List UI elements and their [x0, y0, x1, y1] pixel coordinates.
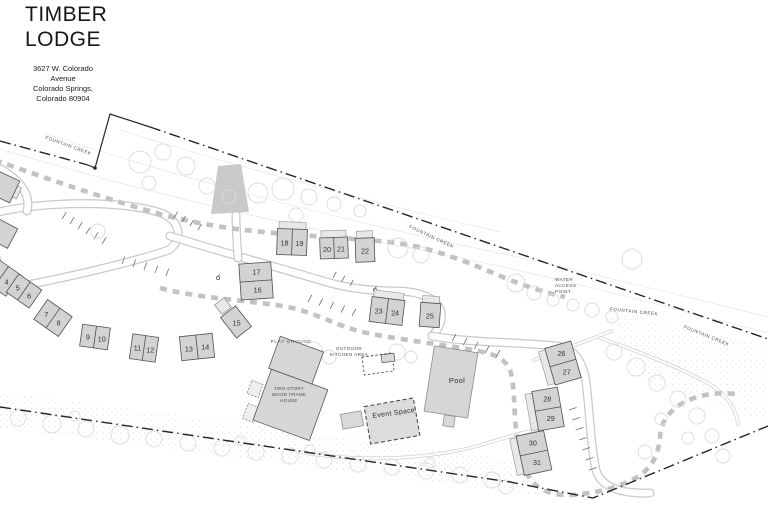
parking-tick: [102, 237, 106, 244]
cabin-number-24: 24: [391, 309, 399, 318]
parking-tick: [86, 227, 90, 234]
road-bridge-stub: [236, 215, 238, 258]
cabin-number-12: 12: [146, 345, 154, 354]
label-water-access-point-line-3: POINT: [555, 289, 571, 294]
tree: [199, 178, 215, 194]
tree: [405, 351, 417, 363]
parking-tick: [319, 298, 323, 305]
event-space-annex-part: [340, 411, 363, 429]
parking-tick: [569, 408, 577, 410]
cabin-number-7: 7: [44, 310, 48, 319]
cabin-number-20: 20: [323, 245, 331, 254]
tree: [248, 183, 268, 203]
outdoor-kitchen-grill-part: [381, 353, 395, 363]
cabin-number-23: 23: [375, 307, 383, 316]
creek-bridge: [211, 164, 249, 214]
tree: [129, 151, 151, 173]
event-space-part: [364, 398, 420, 444]
tree: [272, 178, 294, 200]
tree: [682, 432, 694, 444]
cabin-number-18: 18: [280, 238, 288, 247]
utility-marker-circle: [216, 276, 219, 279]
label-outdoor-kitchen-area-line-2: KITCHEN AREA: [330, 352, 369, 357]
outdoor-kitchen-grill: [381, 353, 395, 363]
tree: [91, 224, 105, 238]
cabin-number-19: 19: [295, 239, 303, 248]
label-water-access-point: WATERACCESSPOINT: [555, 277, 576, 294]
label-water-access-point-line-2: ACCESS: [555, 283, 576, 288]
cabin-number-22: 22: [361, 247, 369, 256]
parking-tick: [78, 222, 82, 229]
tree: [289, 208, 303, 222]
parking-tick: [496, 350, 500, 357]
cabin-number-14: 14: [201, 343, 209, 352]
parking-tick: [352, 309, 356, 316]
parking-tick: [341, 305, 345, 312]
cabin-number-4: 4: [5, 278, 9, 287]
cabin-number-13: 13: [185, 344, 193, 353]
parking-tick: [330, 302, 334, 309]
cabin-20-21-porch: [321, 230, 346, 238]
parking-tick: [576, 428, 584, 430]
cabin-number-10: 10: [98, 334, 106, 343]
label-two-story-house-line-2: WOOD FRAME: [272, 392, 307, 397]
parking-tick: [485, 346, 489, 353]
label-outdoor-kitchen-area: OUTDOORKITCHEN AREA: [330, 346, 369, 357]
parking-tick: [579, 438, 587, 440]
cabin-22-porch: [356, 231, 372, 239]
tree: [606, 344, 622, 360]
label-pool: Pool: [449, 376, 465, 385]
tree: [638, 445, 652, 459]
parking-tick: [62, 212, 66, 219]
cabin-number-5: 5: [16, 283, 20, 292]
cabin-number-11: 11: [134, 344, 141, 353]
tree: [388, 238, 408, 258]
tree: [155, 144, 171, 160]
event-space: [364, 398, 420, 444]
label-pool-line-1: Pool: [449, 376, 465, 385]
house-annex-1-part: [247, 380, 263, 397]
parking-tick: [166, 268, 169, 276]
label-play-ground-line-1: PLAY GROUND: [271, 339, 312, 344]
tree: [567, 299, 579, 311]
property-boundary-2: [88, 114, 150, 168]
tree: [716, 449, 730, 463]
label-play-ground: PLAY GROUND: [271, 339, 312, 344]
cabin-number-25: 25: [426, 312, 434, 321]
utility-marker: [216, 274, 219, 279]
tree: [705, 429, 719, 443]
property-boundary-3: [150, 127, 768, 339]
tree: [622, 249, 642, 269]
building-west-b-footprint: [0, 218, 18, 249]
label-water-access-point-line-1: WATER: [555, 277, 573, 282]
label-two-story-house-line-3: HOUSE: [280, 398, 298, 403]
tree: [689, 408, 705, 424]
house-annex-1: [247, 380, 263, 397]
cabin-number-29: 29: [547, 414, 555, 423]
label-outdoor-kitchen-area-line-1: OUTDOOR: [336, 346, 363, 351]
pool-equipment-part: [443, 415, 456, 428]
cabin-number-15: 15: [233, 318, 241, 327]
parking-tick: [333, 272, 336, 278]
tree: [527, 286, 541, 300]
label-two-story-house-line-1: TWO-STORY: [274, 386, 304, 391]
tree: [177, 157, 195, 175]
building-west-b: [0, 218, 18, 249]
tree: [413, 247, 429, 263]
cabin-7-8: [34, 300, 72, 337]
tree: [585, 303, 599, 317]
cabin-number-6: 6: [27, 291, 31, 300]
tree: [142, 176, 156, 190]
creek-contour-3: [120, 130, 500, 232]
parking-tick: [190, 220, 194, 226]
label-fountain-creek-1-line-1: FOUNTAIN CREEK: [45, 135, 93, 156]
cabin-number-26: 26: [557, 349, 565, 358]
cabin-number-31: 31: [533, 458, 541, 467]
cabin-number-17: 17: [252, 267, 260, 276]
label-fountain-creek-1: FOUNTAIN CREEK: [45, 135, 93, 156]
parking-tick: [70, 217, 74, 224]
parking-tick: [155, 265, 158, 273]
parking-1: [62, 212, 106, 244]
cabin-number-9: 9: [86, 333, 90, 342]
cabin-number-21: 21: [337, 244, 345, 253]
parking-tick: [572, 418, 580, 420]
road-loop-west: [0, 204, 178, 287]
event-space-annex: [340, 411, 363, 429]
parking-tick: [342, 276, 345, 282]
utility-marker-stem: [218, 274, 220, 276]
cabin-number-16: 16: [254, 285, 262, 294]
cabin-number-27: 27: [563, 367, 571, 376]
site-plan-page: { "header": { "title_lines": ["TIMBER", …: [0, 0, 768, 512]
site-plan-drawing: 4567891011121314151716181920212223242526…: [0, 0, 768, 512]
tree: [301, 189, 317, 205]
tree: [354, 205, 366, 217]
pool-equipment: [443, 415, 456, 428]
cabin-number-8: 8: [57, 319, 61, 328]
tree: [327, 197, 341, 211]
cabin-number-28: 28: [543, 394, 551, 403]
cabin-number-30: 30: [529, 439, 537, 448]
parking-tick: [308, 295, 312, 302]
parking-tick: [144, 262, 147, 270]
boundary-vertex-dot: [93, 166, 97, 170]
